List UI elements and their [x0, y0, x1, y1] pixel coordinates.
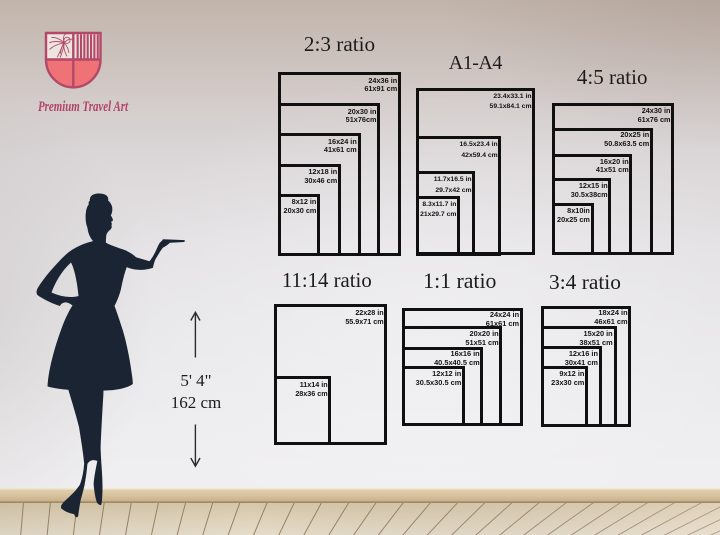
svg-text:Premium Travel Art: Premium Travel Art: [38, 99, 129, 115]
